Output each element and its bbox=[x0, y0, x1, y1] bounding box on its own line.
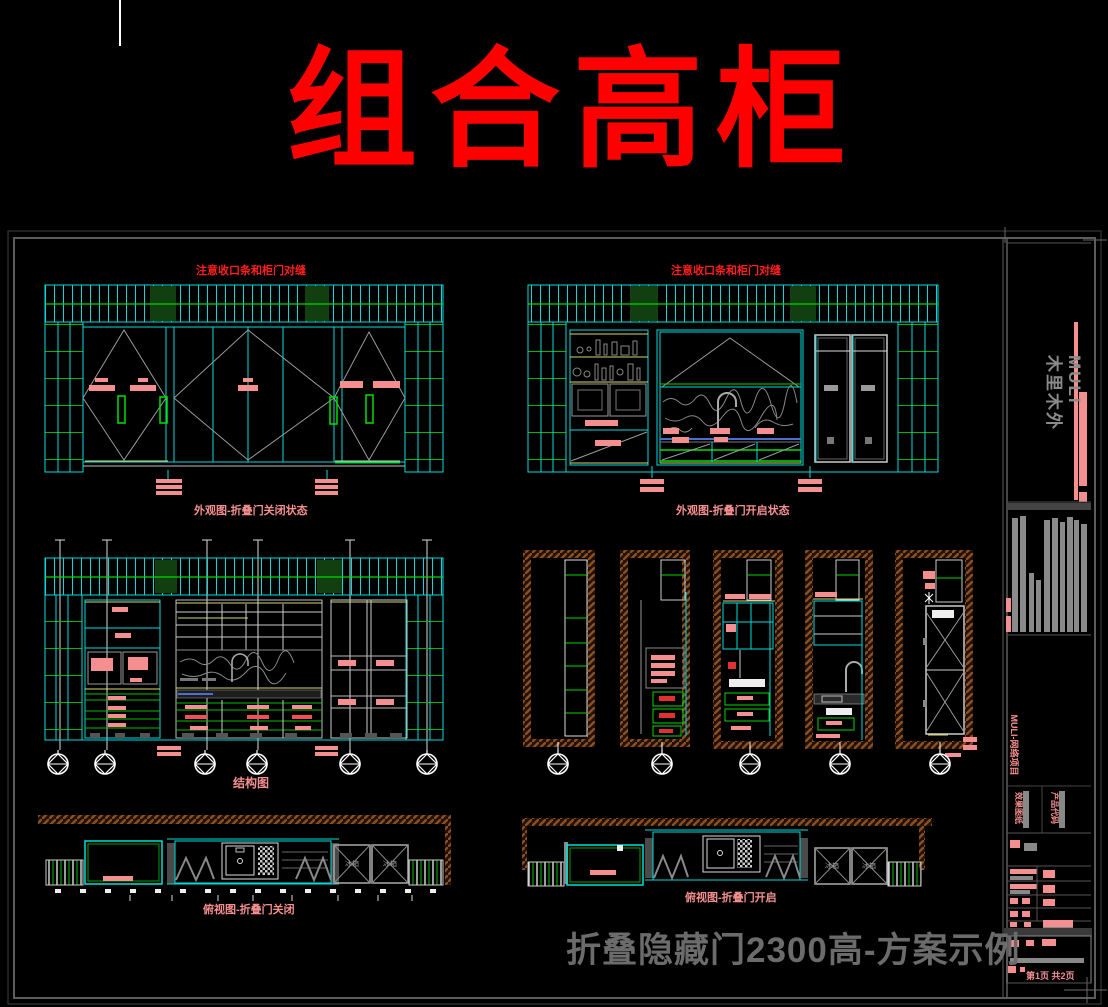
open-middle-column bbox=[657, 330, 803, 465]
caption-plan-closed: 俯视图-折叠门关闭 bbox=[203, 901, 295, 917]
plan-open-view: 冰箱 冰箱 bbox=[522, 818, 932, 886]
title-block-table bbox=[1007, 840, 1091, 930]
elevation-open-view bbox=[528, 285, 938, 492]
open-glass-doors bbox=[815, 335, 887, 462]
scheme-title: 折叠隐藏门2300高-方案示例 bbox=[566, 922, 1021, 973]
doc-label-1: 效果图纸 bbox=[1010, 787, 1024, 829]
barcode bbox=[1012, 516, 1087, 632]
structure-middle-module bbox=[176, 600, 322, 738]
seam-note-left: 注意收口条和柜门对缝 bbox=[196, 262, 306, 278]
brand-logo: MULI 木里木外 bbox=[995, 355, 1085, 399]
section-views bbox=[523, 550, 977, 774]
datum-symbols-structure bbox=[48, 750, 437, 774]
project-label: MULI-网络项目 bbox=[1009, 699, 1021, 791]
page-info: 第1页 共2页 bbox=[1026, 969, 1075, 982]
plan-closed-view: 冰箱 冰箱 bbox=[38, 815, 451, 901]
structure-right-module bbox=[331, 600, 407, 738]
brand-en: MULI bbox=[1064, 355, 1085, 399]
structure-view bbox=[45, 540, 443, 774]
annotation-bars bbox=[89, 378, 400, 391]
appliance-label: 冰箱 bbox=[345, 859, 359, 868]
appliance-label: 冰箱 bbox=[825, 861, 839, 870]
doc-label-2: 产品代码 bbox=[1046, 787, 1060, 829]
appliance-label: 冰箱 bbox=[862, 861, 876, 870]
door-swing-diamonds bbox=[83, 330, 405, 460]
appliance-boxes-open: 冰箱 冰箱 bbox=[815, 848, 887, 884]
structure-left-module bbox=[85, 600, 160, 738]
elevation-closed-view bbox=[45, 285, 443, 495]
seam-note-right: 注意收口条和柜门对缝 bbox=[671, 262, 781, 278]
caption-structure: 结构图 bbox=[233, 774, 269, 791]
brand-cn: 木里木外 bbox=[1043, 355, 1064, 399]
appliance-boxes-closed: 冰箱 冰箱 bbox=[334, 845, 408, 883]
caption-plan-open: 俯视图-折叠门开启 bbox=[685, 889, 777, 905]
open-left-column bbox=[570, 330, 648, 465]
appliance-label: 冰箱 bbox=[383, 859, 397, 868]
title-block bbox=[1004, 243, 1092, 983]
caption-elevation-open: 外观图-折叠门开启状态 bbox=[676, 502, 790, 518]
dimension-ticks bbox=[55, 889, 436, 893]
caption-elevation-closed: 外观图-折叠门关闭状态 bbox=[194, 502, 308, 518]
cad-sheet-linework: 冰箱 冰箱 bbox=[0, 0, 1108, 1007]
cad-sheet: 组合高柜 bbox=[0, 0, 1108, 1007]
